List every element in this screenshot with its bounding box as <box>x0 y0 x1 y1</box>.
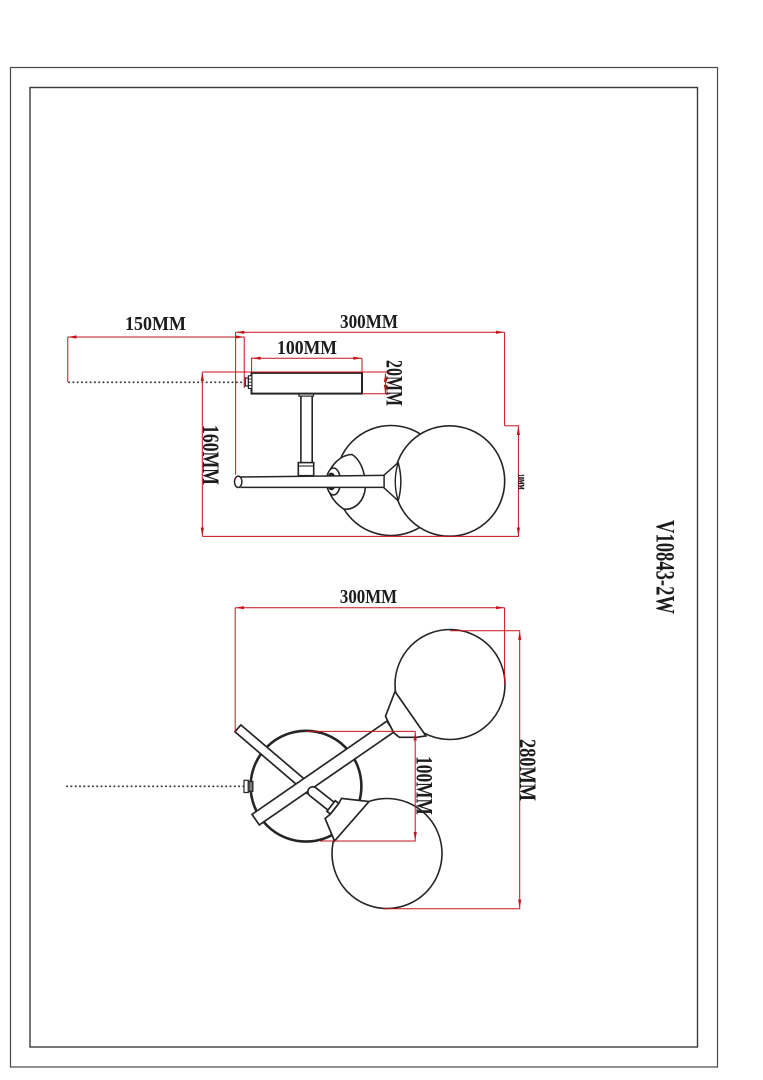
svg-text:280MM: 280MM <box>514 739 539 801</box>
svg-text:160MM: 160MM <box>197 425 222 485</box>
svg-text:150MM: 150MM <box>125 313 186 335</box>
svg-text:100MM: 100MM <box>411 756 436 815</box>
svg-text:300MM: 300MM <box>340 311 398 334</box>
svg-text:300MM: 300MM <box>340 587 397 609</box>
svg-text:100MM: 100MM <box>277 337 337 359</box>
svg-text:V10843-2W: V10843-2W <box>651 520 680 614</box>
svg-text:20MM: 20MM <box>380 360 406 406</box>
svg-text:10MM: 10MM <box>516 474 524 490</box>
